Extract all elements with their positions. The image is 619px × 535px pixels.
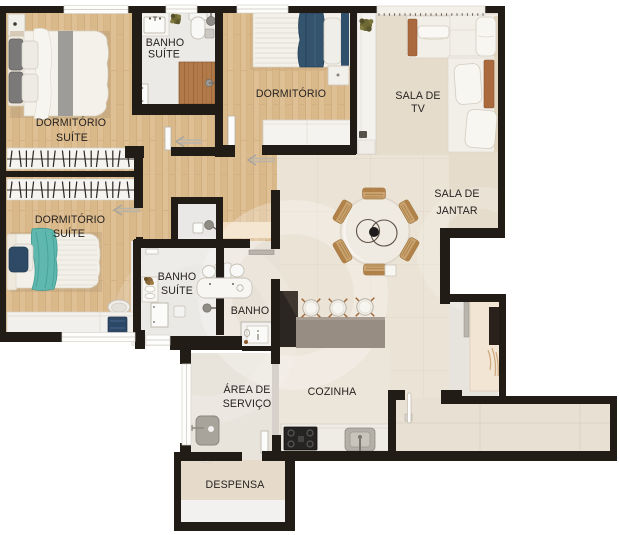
svg-text:DORMITÓRIO: DORMITÓRIO xyxy=(36,116,106,129)
svg-text:BANHO: BANHO xyxy=(231,305,269,317)
svg-text:SUÍTE: SUÍTE xyxy=(53,227,85,240)
svg-text:BANHO: BANHO xyxy=(158,271,196,283)
svg-text:SALA DE: SALA DE xyxy=(434,188,479,200)
svg-text:BANHO: BANHO xyxy=(146,37,184,49)
svg-text:DESPENSA: DESPENSA xyxy=(206,479,266,491)
svg-text:ÁREA DE: ÁREA DE xyxy=(224,383,271,396)
svg-text:DORMITÓRIO: DORMITÓRIO xyxy=(35,213,105,226)
svg-text:DORMITÓRIO: DORMITÓRIO xyxy=(256,87,326,100)
svg-text:JANTAR: JANTAR xyxy=(436,205,478,217)
svg-text:SERVIÇO: SERVIÇO xyxy=(223,398,272,410)
svg-text:COZINHA: COZINHA xyxy=(308,386,358,398)
svg-text:SUÍTE: SUÍTE xyxy=(161,284,193,297)
svg-text:SUÍTE: SUÍTE xyxy=(56,131,88,144)
svg-text:SALA DE: SALA DE xyxy=(395,90,440,102)
svg-text:SUÍTE: SUÍTE xyxy=(148,48,180,61)
svg-text:TV: TV xyxy=(411,103,426,115)
